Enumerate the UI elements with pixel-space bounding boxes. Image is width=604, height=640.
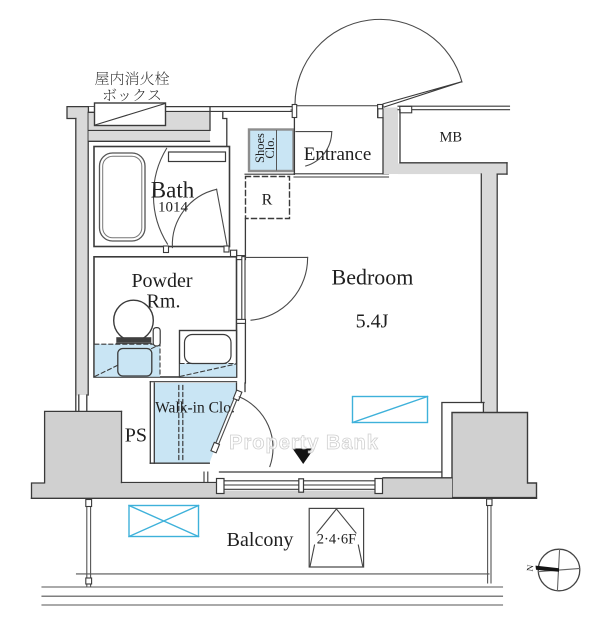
svg-text:Entrance: Entrance [304, 144, 372, 165]
svg-text:Bedroom: Bedroom [332, 265, 414, 290]
svg-text:Rm.: Rm. [147, 291, 181, 313]
svg-text:Powder: Powder [131, 270, 192, 292]
svg-text:R: R [262, 192, 273, 209]
svg-text:5.4J: 5.4J [356, 311, 389, 333]
svg-text:MB: MB [440, 130, 463, 146]
svg-text:1014: 1014 [158, 200, 189, 216]
svg-text:Walk-in Clo.: Walk-in Clo. [155, 400, 235, 417]
svg-text:Clo.: Clo. [263, 137, 277, 158]
svg-text:Property Bank: Property Bank [229, 432, 379, 454]
svg-text:PS: PS [125, 425, 147, 447]
svg-text:2·4·6F: 2·4·6F [317, 532, 356, 548]
svg-text:Balcony: Balcony [227, 529, 294, 551]
